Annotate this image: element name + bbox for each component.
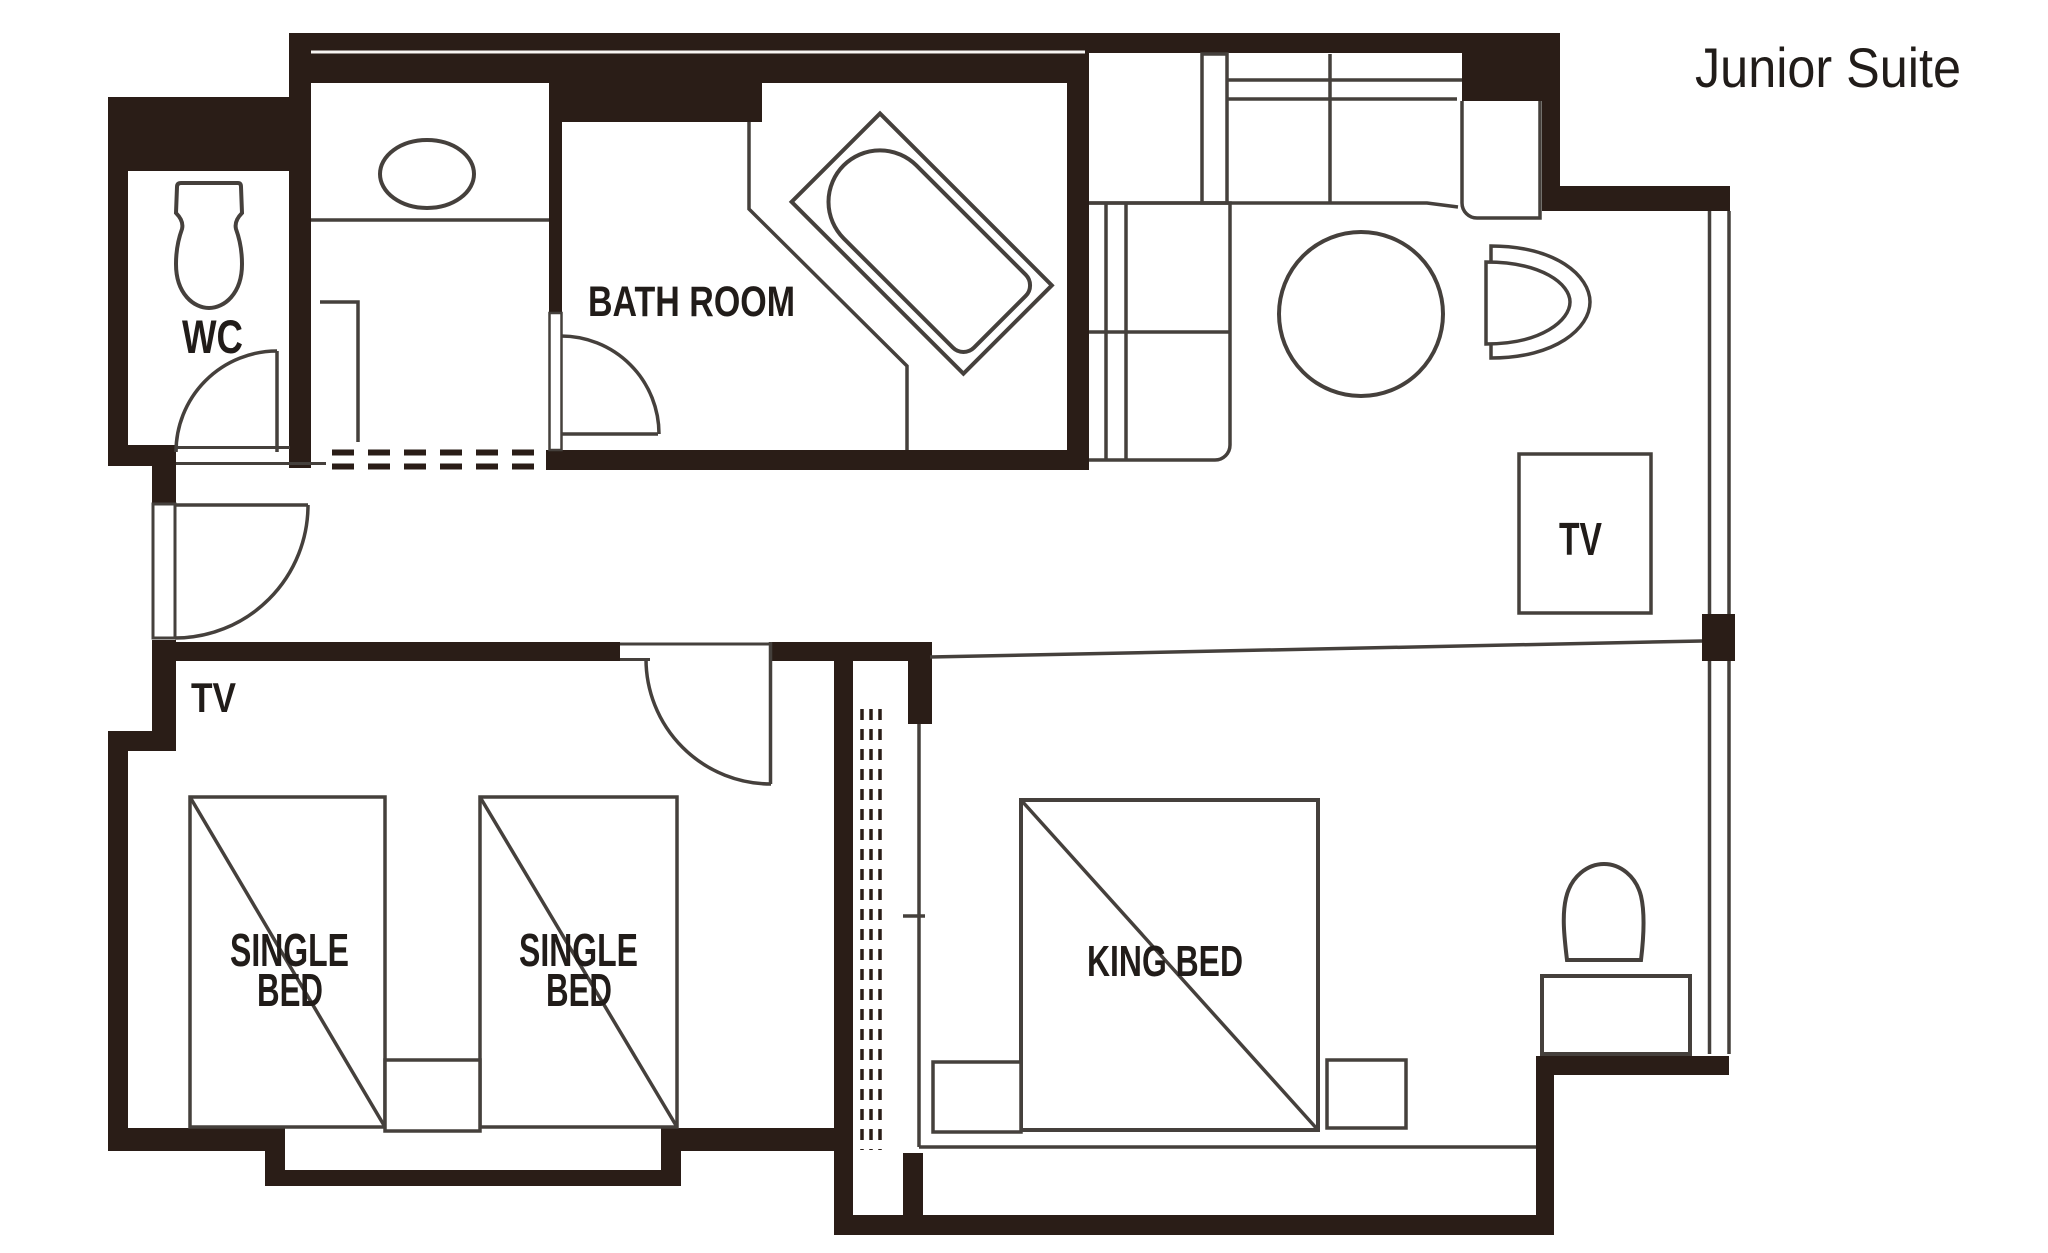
svg-text:BED: BED	[257, 964, 323, 1016]
svg-text:KING BED: KING BED	[1087, 937, 1243, 986]
svg-text:WC: WC	[182, 310, 243, 363]
svg-text:TV: TV	[191, 674, 236, 721]
svg-text:BED: BED	[546, 964, 612, 1016]
svg-text:BATH ROOM: BATH ROOM	[588, 278, 795, 326]
svg-text:TV: TV	[1559, 513, 1602, 565]
svg-text:Junior Suite: Junior Suite	[1695, 36, 1961, 99]
